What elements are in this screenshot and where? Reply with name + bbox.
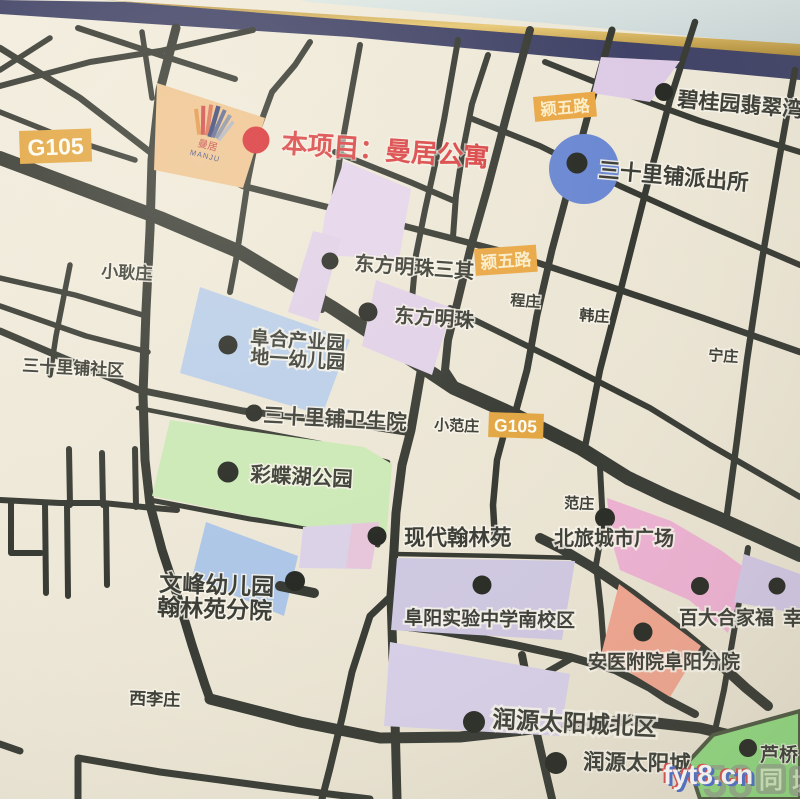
- svg-text:现代翰林苑: 现代翰林苑: [404, 525, 512, 550]
- svg-text:小耿庄: 小耿庄: [101, 261, 153, 284]
- svg-text:安医附院阜阳分院: 安医附院阜阳分院: [588, 650, 740, 673]
- svg-text:芦桥: 芦桥: [760, 743, 799, 766]
- svg-text:韩庄: 韩庄: [579, 306, 610, 326]
- svg-text:fyt8.cn: fyt8.cn: [663, 759, 753, 790]
- svg-text:幸福: 幸福: [783, 607, 800, 630]
- svg-text:范庄: 范庄: [564, 494, 595, 513]
- svg-text:阜阳实验中学南校区: 阜阳实验中学南校区: [404, 606, 575, 632]
- svg-text:西李庄: 西李庄: [129, 688, 181, 710]
- svg-text:城: 城: [792, 768, 800, 796]
- svg-text:程庄: 程庄: [510, 291, 541, 311]
- svg-text:百大合家福: 百大合家福: [679, 606, 774, 629]
- svg-text:同: 同: [759, 767, 783, 794]
- svg-text:小范庄: 小范庄: [434, 416, 480, 436]
- svg-text:翰林苑分院: 翰林苑分院: [157, 594, 273, 624]
- svg-text:颍五路: 颍五路: [480, 249, 533, 273]
- svg-text:G105: G105: [27, 133, 84, 161]
- svg-text:北旅城市广场: 北旅城市广场: [554, 526, 674, 550]
- svg-text:宁庄: 宁庄: [708, 346, 739, 366]
- svg-text:G105: G105: [494, 415, 538, 436]
